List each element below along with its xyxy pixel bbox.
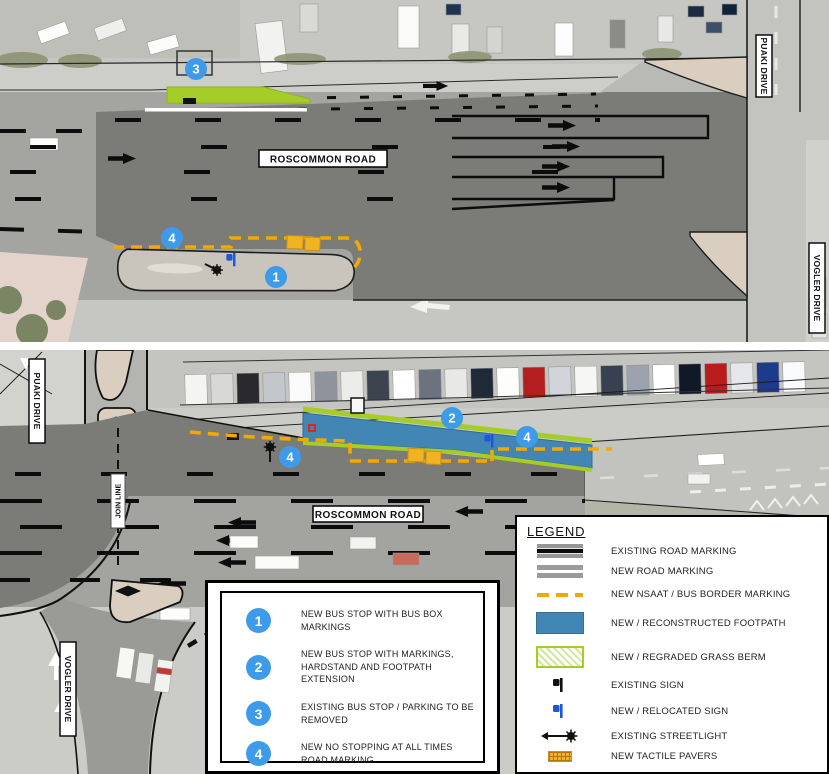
marker-1: 1 xyxy=(265,266,287,288)
plan-panel-north: ROSCOMMON ROAD PUAKI DRIVE VOGLER DRIVE … xyxy=(0,0,829,342)
bus-shelter xyxy=(351,398,364,413)
callout-item-3: 3 EXISTING BUS STOP / PARKING TO BE REMO… xyxy=(246,701,475,726)
svg-text:1: 1 xyxy=(272,270,279,285)
nsaat-swatch xyxy=(537,593,583,597)
svg-text:ROSCOMMON ROAD: ROSCOMMON ROAD xyxy=(315,510,421,521)
join-line-label: JOIN LINE xyxy=(111,474,125,528)
legend-item-existing-sign: EXISTING SIGN xyxy=(531,677,827,693)
bus-bay-island xyxy=(117,249,354,296)
svg-text:VOGLER DRIVE: VOGLER DRIVE xyxy=(63,656,73,723)
svg-text:4: 4 xyxy=(286,450,294,465)
legend-item-new-sign: NEW / RELOCATED SIGN xyxy=(531,703,827,719)
callout-number-badge: 4 xyxy=(246,741,271,766)
footpath-swatch xyxy=(536,612,584,634)
new-road-marking-swatch xyxy=(537,565,583,578)
callout-item-1: 1 NEW BUS STOP WITH BUS BOX MARKINGS xyxy=(246,608,475,633)
callout-notes-inner: 1 NEW BUS STOP WITH BUS BOX MARKINGS 2 N… xyxy=(220,591,485,763)
svg-text:VOGLER DRIVE: VOGLER DRIVE xyxy=(812,255,822,322)
street-label-vogler-bottom: VOGLER DRIVE xyxy=(60,642,76,736)
callout-text: NEW BUS STOP WITH MARKINGS, HARDSTAND AN… xyxy=(301,648,475,686)
marker-4: 4 xyxy=(161,227,183,249)
new-sign-icon xyxy=(551,703,569,719)
legend-box: LEGEND EXISTING ROAD MARKING NEW ROAD MA… xyxy=(515,515,829,774)
legend-item-tactile-pavers: NEW TACTILE PAVERS xyxy=(531,751,827,762)
road-label-roscommon-top: ROSCOMMON ROAD xyxy=(259,150,387,167)
existing-white-line xyxy=(145,108,307,112)
roadworks-plan: ROSCOMMON ROAD PUAKI DRIVE VOGLER DRIVE … xyxy=(0,0,829,774)
marker-3: 3 xyxy=(185,58,207,80)
road-label-roscommon-bottom: ROSCOMMON ROAD xyxy=(313,506,423,522)
svg-text:PUAKI DRIVE: PUAKI DRIVE xyxy=(32,373,42,430)
legend-item-footpath: NEW / RECONSTRUCTED FOOTPATH xyxy=(531,612,827,634)
svg-text:3: 3 xyxy=(192,62,199,77)
legend-item-nsaat: NEW NSAAT / BUS BORDER MARKING xyxy=(531,589,827,600)
callout-number-badge: 1 xyxy=(246,608,271,633)
callout-text: NEW NO STOPPING AT ALL TIMES ROAD MARKIN… xyxy=(301,741,475,766)
svg-text:2: 2 xyxy=(448,411,455,426)
marker-4: 4 xyxy=(279,446,301,468)
callout-number-badge: 3 xyxy=(246,701,271,726)
street-label-vogler-top: VOGLER DRIVE xyxy=(809,243,825,333)
street-label-puaki-bottom: PUAKI DRIVE xyxy=(29,359,45,443)
svg-text:4: 4 xyxy=(168,231,176,246)
tactile-pavers-swatch xyxy=(548,751,572,762)
callout-text: EXISTING BUS STOP / PARKING TO BE REMOVE… xyxy=(301,701,475,726)
callout-text: NEW BUS STOP WITH BUS BOX MARKINGS xyxy=(301,608,475,633)
legend-item-grass-berm: NEW / REGRADED GRASS BERM xyxy=(531,646,827,668)
legend-item-existing-road-marking: EXISTING ROAD MARKING xyxy=(531,544,827,558)
existing-road-marking-swatch xyxy=(537,544,583,558)
callout-item-4: 4 NEW NO STOPPING AT ALL TIMES ROAD MARK… xyxy=(246,741,475,766)
svg-text:ROSCOMMON ROAD: ROSCOMMON ROAD xyxy=(270,155,376,166)
svg-text:JOIN LINE: JOIN LINE xyxy=(116,484,123,519)
legend-item-streetlight: EXISTING STREETLIGHT xyxy=(531,728,827,744)
grass-berm-swatch xyxy=(536,646,584,668)
street-label-puaki-top: PUAKI DRIVE xyxy=(756,35,772,97)
streetlight-icon xyxy=(540,728,580,744)
marker-4: 4 xyxy=(516,426,538,448)
existing-sign-icon xyxy=(551,677,569,693)
svg-text:4: 4 xyxy=(523,430,531,445)
svg-text:PUAKI DRIVE: PUAKI DRIVE xyxy=(759,38,769,95)
callout-notes-box: 1 NEW BUS STOP WITH BUS BOX MARKINGS 2 N… xyxy=(205,580,500,774)
callout-item-2: 2 NEW BUS STOP WITH MARKINGS, HARDSTAND … xyxy=(246,648,475,686)
marker-2: 2 xyxy=(441,407,463,429)
legend-item-new-road-marking: NEW ROAD MARKING xyxy=(531,565,827,578)
callout-number-badge: 2 xyxy=(246,655,271,680)
legend-title: LEGEND xyxy=(527,524,827,539)
